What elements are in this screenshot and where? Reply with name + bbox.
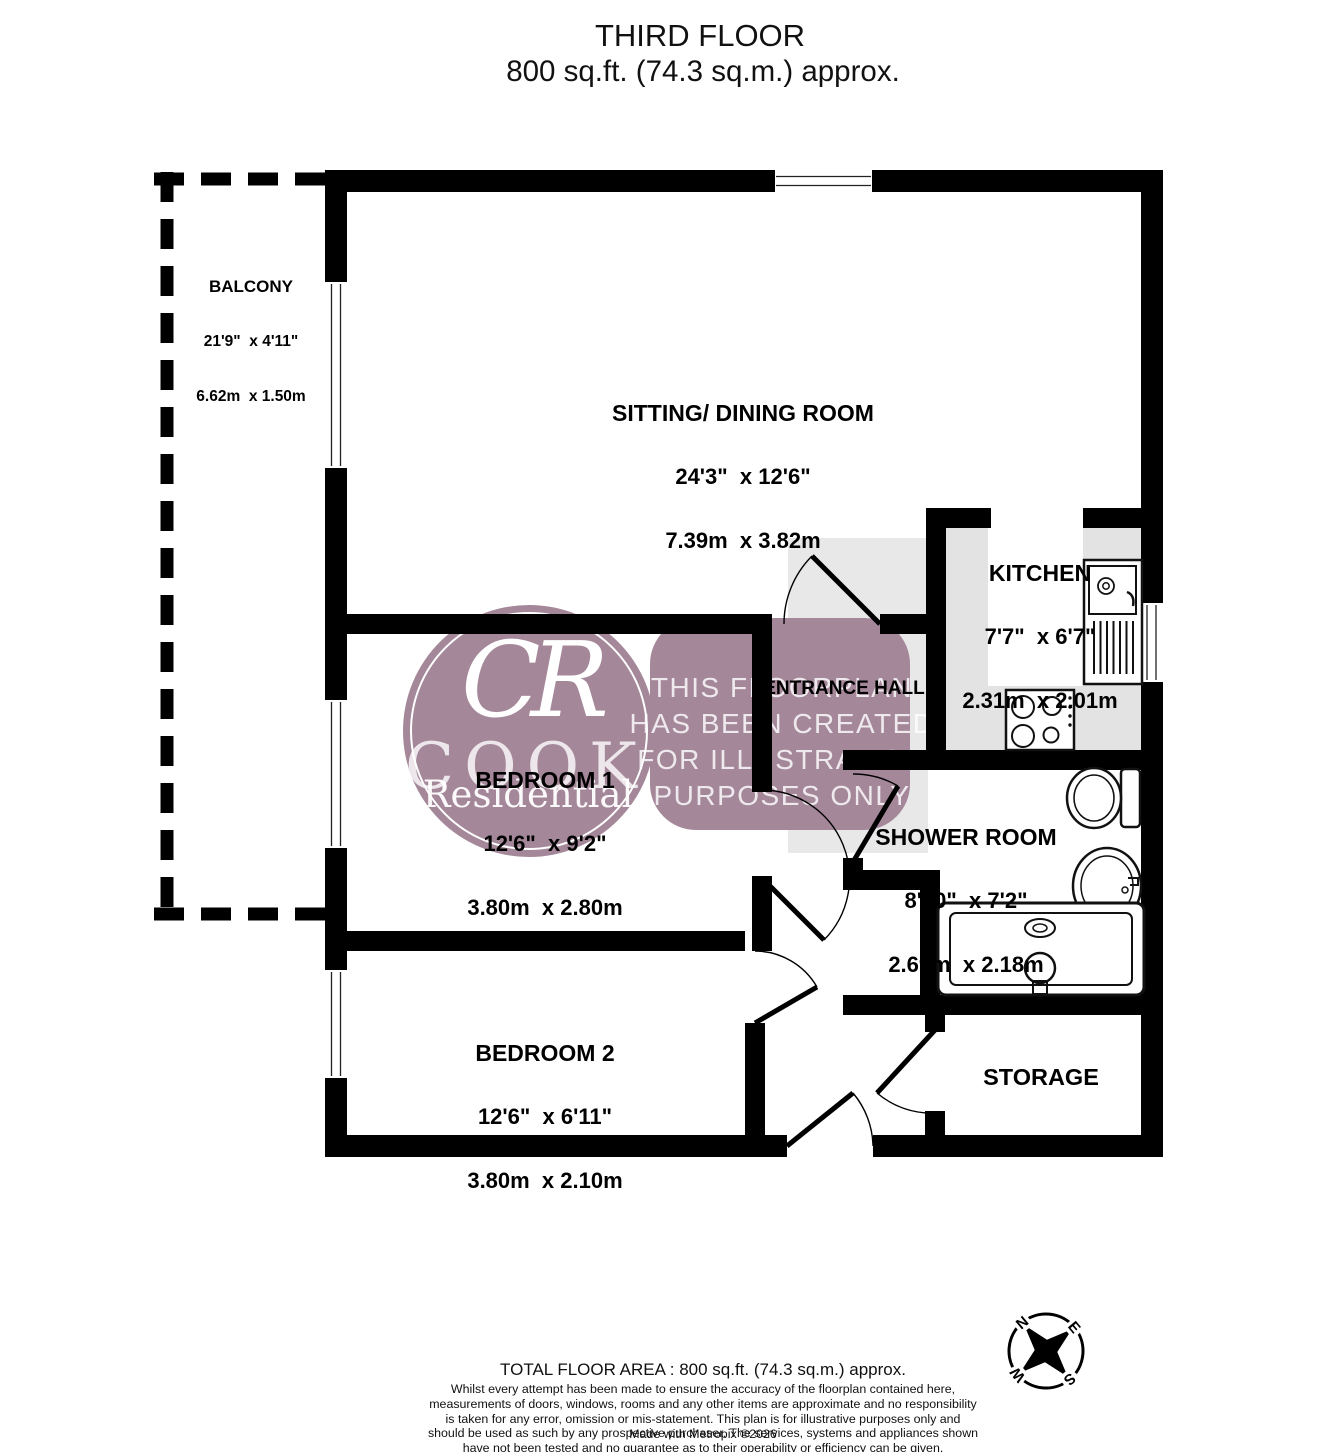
room-name: BEDROOM 1 bbox=[467, 766, 622, 794]
room-label-storage: STORAGE bbox=[983, 1064, 1099, 1091]
room-label-bedroom2: BEDROOM 2 12'6" x 6'11" 3.80m x 2.10m bbox=[467, 1003, 622, 1213]
wall-segment bbox=[925, 1015, 945, 1032]
room-label-bedroom1: BEDROOM 1 12'6" x 9'2" 3.80m x 2.80m bbox=[467, 730, 622, 940]
room-dims-imperial: 21'9" x 4'11" bbox=[196, 332, 305, 351]
room-label-sitting-dining: SITTING/ DINING ROOM 24'3" x 12'6" 7.39m… bbox=[612, 363, 874, 573]
room-label-kitchen: KITCHEN 7'7" x 6'7" 2.31m x 2.01m bbox=[962, 523, 1117, 733]
wall-segment bbox=[325, 468, 347, 700]
room-name: SHOWER ROOM bbox=[875, 823, 1056, 851]
room-dims-imperial: 12'6" x 9'2" bbox=[467, 830, 622, 858]
room-label-shower-room: SHOWER ROOM 8'10" x 7'2" 2.69m x 2.18m bbox=[875, 787, 1056, 997]
page-subtitle: 800 sq.ft. (74.3 sq.m.) approx. bbox=[506, 55, 900, 89]
total-floor-area: TOTAL FLOOR AREA : 800 sq.ft. (74.3 sq.m… bbox=[500, 1360, 906, 1380]
disclaimer-text: Whilst every attempt has been made to en… bbox=[427, 1382, 979, 1452]
wall-segment bbox=[325, 170, 347, 282]
room-name: KITCHEN bbox=[962, 559, 1117, 587]
compass-icon: N E S W bbox=[983, 1288, 1110, 1415]
room-dims-metric: 2.31m x 2.01m bbox=[962, 687, 1117, 715]
wall-segment bbox=[1141, 170, 1163, 603]
floorplan-page: CR COOK Residential THIS FLOORPLAN HAS B… bbox=[0, 0, 1320, 1452]
room-name: BALCONY bbox=[196, 277, 305, 296]
toilet-bowl bbox=[1067, 768, 1121, 828]
room-label-balcony: BALCONY 21'9" x 4'11" 6.62m x 1.50m bbox=[196, 241, 305, 424]
watermark-notice-line: PURPOSES ONLY bbox=[653, 780, 910, 811]
page-title: THIRD FLOOR bbox=[595, 18, 805, 54]
room-dims-imperial: 8'10" x 7'2" bbox=[875, 887, 1056, 915]
wall-segment bbox=[325, 170, 775, 192]
room-name: SITTING/ DINING ROOM bbox=[612, 399, 874, 427]
floorplan-drawing: CR COOK Residential THIS FLOORPLAN HAS B… bbox=[0, 0, 1320, 1452]
toilet-cistern bbox=[1121, 769, 1140, 827]
room-dims-imperial: 7'7" x 6'7" bbox=[962, 623, 1117, 651]
watermark-notice-line: HAS BEEN CREATED bbox=[629, 708, 934, 739]
room-dims-metric: 3.80m x 2.10m bbox=[467, 1167, 622, 1195]
compass-star bbox=[998, 1303, 1094, 1399]
room-dims-metric: 6.62m x 1.50m bbox=[196, 387, 305, 406]
wall-segment bbox=[925, 1111, 945, 1135]
credit-text: Made with Metropix ©2026 bbox=[629, 1427, 777, 1441]
room-label-entrance-hall: ENTRANCE HALL bbox=[763, 678, 925, 700]
wall-segment bbox=[843, 995, 1163, 1015]
room-dims-imperial: 12'6" x 6'11" bbox=[467, 1103, 622, 1131]
wall-segment bbox=[745, 1023, 765, 1135]
wall-segment bbox=[926, 508, 946, 770]
wall-segment bbox=[880, 614, 926, 634]
wall-segment bbox=[347, 614, 772, 634]
wall-segment bbox=[872, 170, 1163, 192]
wall-segment bbox=[752, 634, 772, 792]
wall-segment bbox=[325, 848, 347, 970]
room-dims-metric: 7.39m x 3.82m bbox=[612, 527, 874, 555]
room-dims-metric: 3.80m x 2.80m bbox=[467, 894, 622, 922]
room-dims-imperial: 24'3" x 12'6" bbox=[612, 463, 874, 491]
watermark-initials: CR bbox=[461, 619, 606, 741]
wall-segment bbox=[873, 1135, 1163, 1157]
room-name: BEDROOM 2 bbox=[467, 1039, 622, 1067]
room-dims-metric: 2.69m x 2.18m bbox=[875, 951, 1056, 979]
